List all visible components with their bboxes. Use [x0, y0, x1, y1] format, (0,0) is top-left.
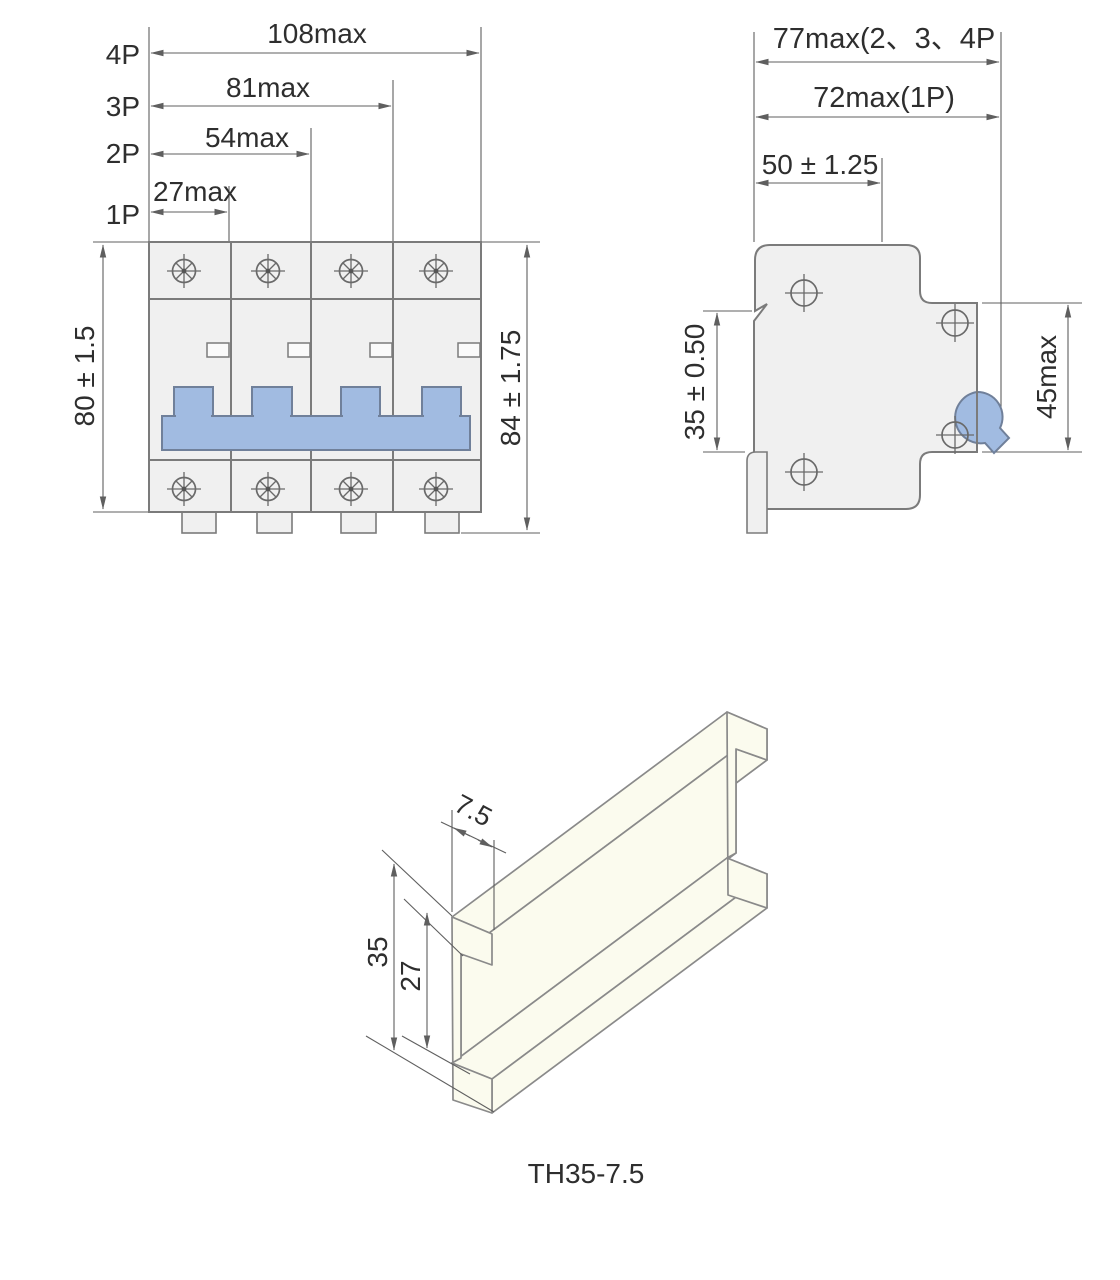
dim-label-72max: 72max(1P): [813, 82, 955, 114]
breaker-front-body: [149, 242, 481, 533]
pole-label-1p: 1P: [106, 199, 140, 230]
din-tab: [257, 512, 292, 533]
dim-label-7-5: 7.5: [450, 789, 497, 833]
technical-drawing: 4P 3P 2P 1P 108max 81max 54max 27max 80 …: [0, 0, 1120, 1280]
dim-label-81max: 81max: [226, 72, 310, 103]
dim-label-rail-35: 35: [362, 936, 393, 967]
indicator-window: [458, 343, 480, 357]
dim-label-27max: 27max: [153, 176, 237, 207]
dim-label-50: 50 ± 1.25: [762, 149, 879, 180]
indicator-window: [370, 343, 392, 357]
dimension-drawing-page: 4P 3P 2P 1P 108max 81max 54max 27max 80 …: [0, 0, 1120, 1280]
dim-label-rail-27: 27: [395, 960, 426, 991]
front-view: 4P 3P 2P 1P 108max 81max 54max 27max 80 …: [69, 18, 540, 533]
pole-label-3p: 3P: [106, 91, 140, 122]
handle-tie-bar: [162, 416, 470, 450]
breaker-side-body: [747, 245, 1009, 533]
dim-label-35-seat: 35 ± 0.50: [679, 324, 710, 441]
rail-type-label: TH35-7.5: [528, 1158, 645, 1189]
indicator-window: [207, 343, 229, 357]
dim-label-45max: 45max: [1031, 335, 1062, 419]
dim-label-80: 80 ± 1.5: [69, 326, 100, 427]
rail-far-end-face: [727, 712, 767, 908]
dim-label-84: 84 ± 1.75: [495, 330, 526, 447]
dim-label-77max: 77max(2、3、4P: [773, 23, 995, 55]
handle-bar-joint: [254, 413, 290, 419]
din-tab: [425, 512, 459, 533]
din-tab: [341, 512, 376, 533]
din-tab: [182, 512, 216, 533]
side-view: 77max(2、3、4P 72max(1P) 50 ± 1.25 35 ± 0.…: [679, 23, 1082, 533]
handle-bar-joint: [176, 413, 211, 419]
pole-label-2p: 2P: [106, 138, 140, 169]
din-rail-clip: [747, 452, 767, 533]
din-rail-view: 7.5 35 27 TH35-7.5: [362, 712, 767, 1189]
pole-label-4p: 4P: [106, 39, 140, 70]
dim-label-54max: 54max: [205, 122, 289, 153]
dim-label-108max: 108max: [267, 18, 367, 49]
indicator-window: [288, 343, 310, 357]
handle-bar-joint: [343, 413, 378, 419]
handle-bar-joint: [424, 413, 459, 419]
